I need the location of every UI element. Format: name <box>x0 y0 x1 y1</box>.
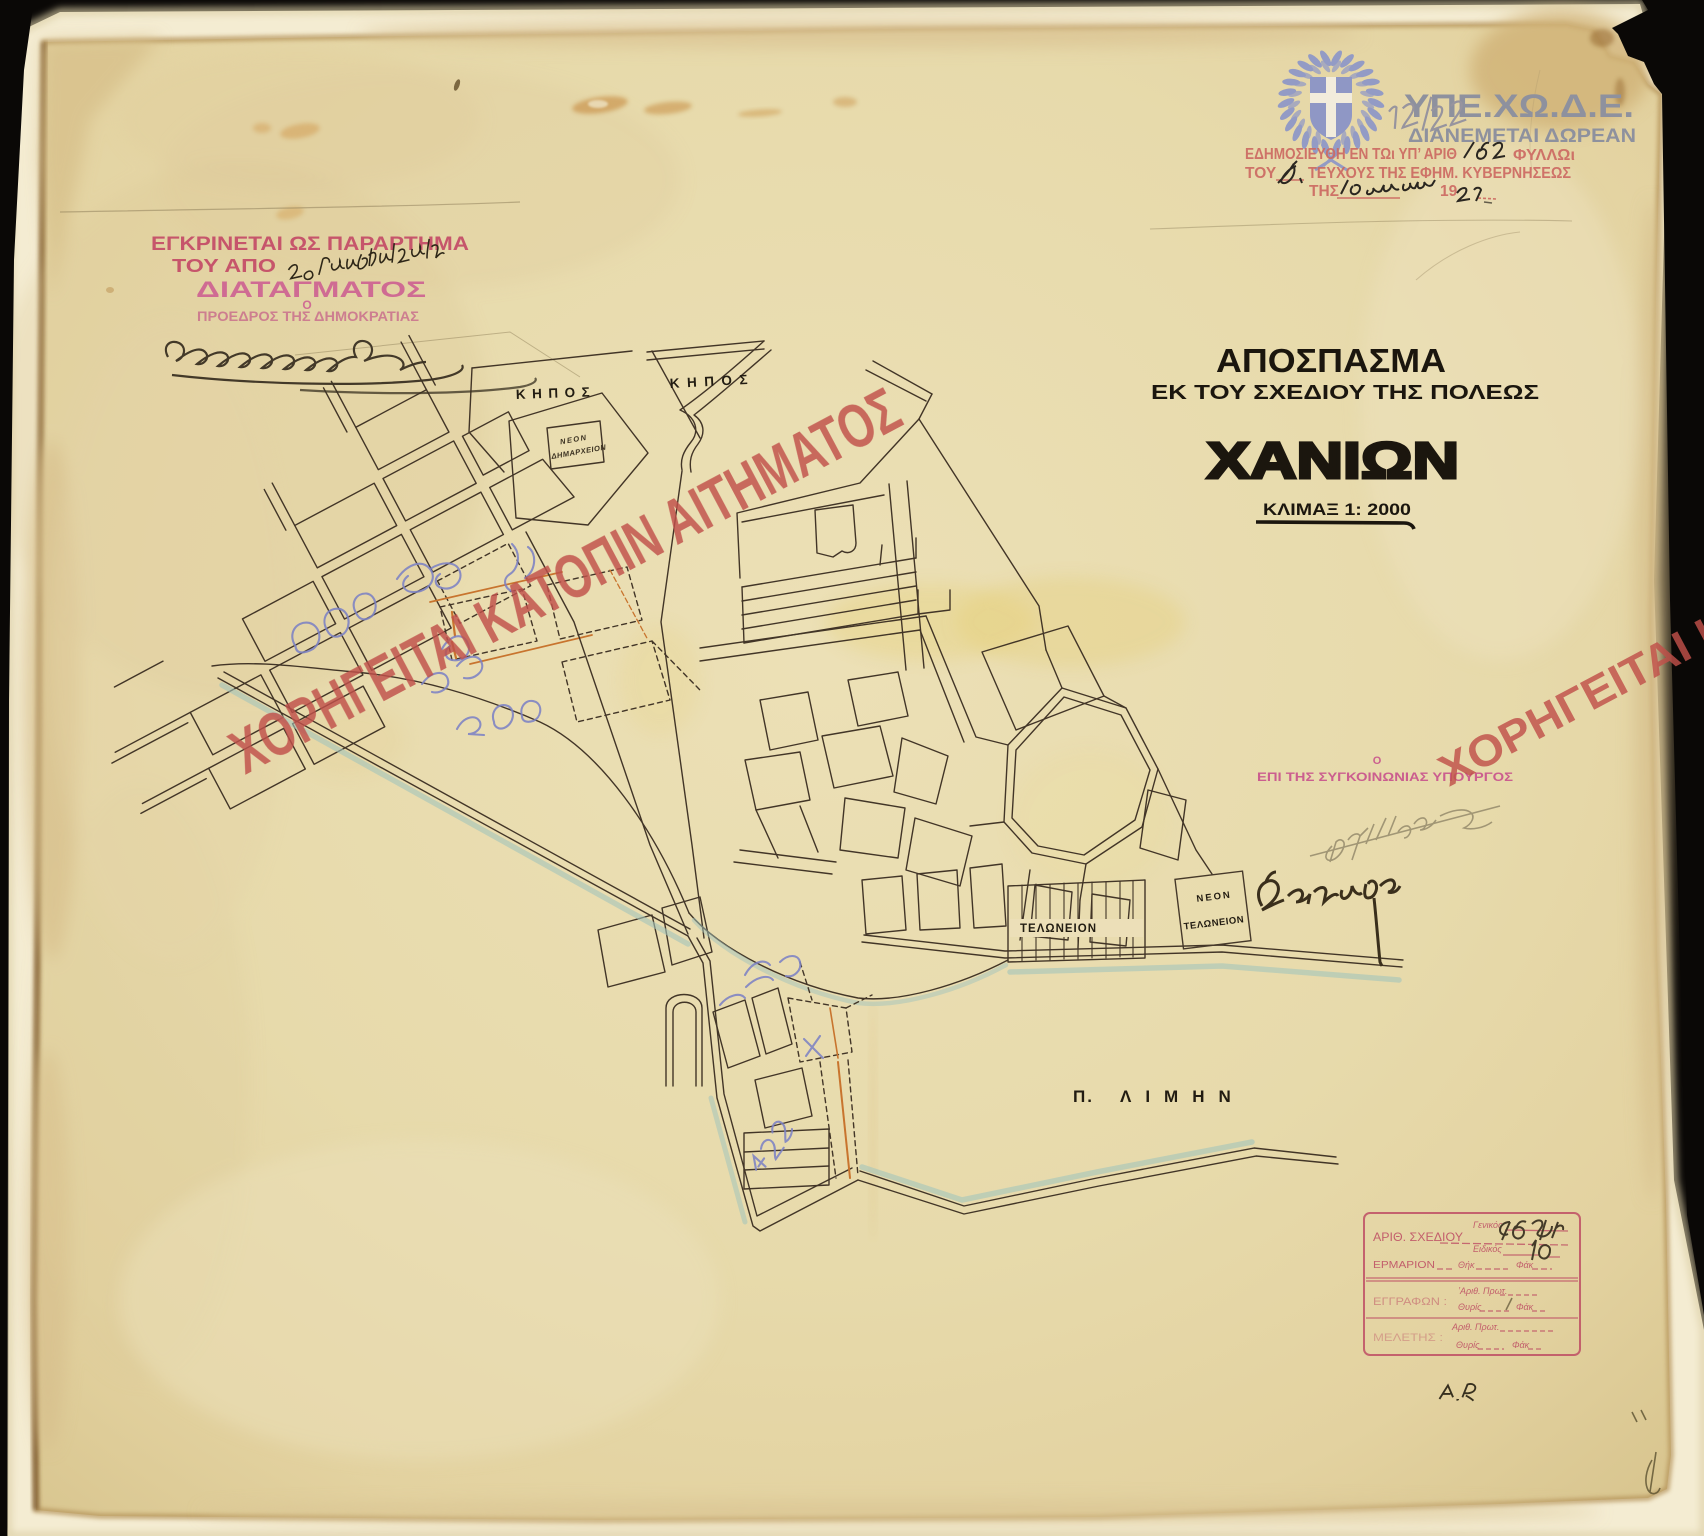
svg-text:ΦΥΛΛΩι: ΦΥΛΛΩι <box>1513 147 1575 164</box>
svg-text:Φάκ: Φάκ <box>1512 1340 1530 1350</box>
svg-text:ΚΗΠΟΣ: ΚΗΠΟΣ <box>516 384 597 402</box>
svg-text:Φάκ: Φάκ <box>1516 1302 1534 1312</box>
svg-text:Ο: Ο <box>1373 755 1382 767</box>
svg-text:ΑΡΙΘ. ΣΧΕΔΙΟΥ: ΑΡΙΘ. ΣΧΕΔΙΟΥ <box>1373 1232 1463 1244</box>
svg-text:ΤΟΥ: ΤΟΥ <box>1245 165 1277 182</box>
svg-text:ΧΑΝΙΩΝ: ΧΑΝΙΩΝ <box>1207 432 1459 489</box>
svg-text:Αριθ. Πρωτ.: Αριθ. Πρωτ. <box>1451 1322 1499 1332</box>
svg-text:ΚΛΙΜΑΞ 1: 2000: ΚΛΙΜΑΞ 1: 2000 <box>1263 501 1411 519</box>
svg-text:Θυρίς: Θυρίς <box>1458 1302 1482 1312</box>
svg-text:ΕΚ ΤΟΥ ΣΧΕΔΙΟΥ ΤΗΣ ΠΟΛΕΩΣ: ΕΚ ΤΟΥ ΣΧΕΔΙΟΥ ΤΗΣ ΠΟΛΕΩΣ <box>1151 381 1539 404</box>
svg-text:ΕΔΗΜΟΣΙΕΥΘΗ ΕΝ ΤΩι ΥΠ’ ΑΡΙΘ: ΕΔΗΜΟΣΙΕΥΘΗ ΕΝ ΤΩι ΥΠ’ ΑΡΙΘ <box>1245 146 1457 163</box>
svg-text:ʼΑριθ. Πρωτ.: ʼΑριθ. Πρωτ. <box>1458 1286 1507 1296</box>
svg-text:ΤΕΥΧΟΥΣ ΤΗΣ ΕΦΗΜ. ΚΥΒΕΡΝΗΣΕΩΣ: ΤΕΥΧΟΥΣ ΤΗΣ ΕΦΗΜ. ΚΥΒΕΡΝΗΣΕΩΣ <box>1308 165 1571 182</box>
svg-text:ΑΠΟΣΠΑΣΜΑ: ΑΠΟΣΠΑΣΜΑ <box>1216 342 1446 379</box>
svg-text:ΤΟΥ ΑΠΟ: ΤΟΥ ΑΠΟ <box>172 256 276 276</box>
svg-text:Φάκ: Φάκ <box>1516 1260 1534 1270</box>
svg-text:ΤΕΛΩΝΕΙΟΝ: ΤΕΛΩΝΕΙΟΝ <box>1020 923 1097 935</box>
svg-text:ΕΡΜΑΡΙΟΝ: ΕΡΜΑΡΙΟΝ <box>1373 1259 1435 1271</box>
svg-text:ΔΙΑΝΕΜΕΤΑΙ ΔΩΡΕΑΝ: ΔΙΑΝΕΜΕΤΑΙ ΔΩΡΕΑΝ <box>1408 125 1636 147</box>
svg-text:ΤΗΣ: ΤΗΣ <box>1309 183 1339 200</box>
svg-text:ΜΕΛΕΤΗΣ :: ΜΕΛΕΤΗΣ : <box>1373 1332 1443 1344</box>
svg-text:Γενικός: Γενικός <box>1473 1220 1503 1230</box>
svg-text:ΕΓΓΡΑΦΩΝ :: ΕΓΓΡΑΦΩΝ : <box>1373 1296 1447 1308</box>
svg-text:19: 19 <box>1440 183 1458 200</box>
svg-text:Θυρίς: Θυρίς <box>1456 1340 1480 1350</box>
svg-text:ΛΙΜΗΝ: ΛΙΜΗΝ <box>1120 1087 1245 1106</box>
svg-text:Ειδικός: Ειδικός <box>1473 1244 1502 1254</box>
svg-text:ΠΡΟΕΔΡΟΣ ΤΗΣ ΔΗΜΟΚΡΑΤΙΑΣ: ΠΡΟΕΔΡΟΣ ΤΗΣ ΔΗΜΟΚΡΑΤΙΑΣ <box>197 309 419 324</box>
svg-text:Π.: Π. <box>1073 1087 1094 1106</box>
svg-text:Θήκ: Θήκ <box>1458 1260 1475 1270</box>
